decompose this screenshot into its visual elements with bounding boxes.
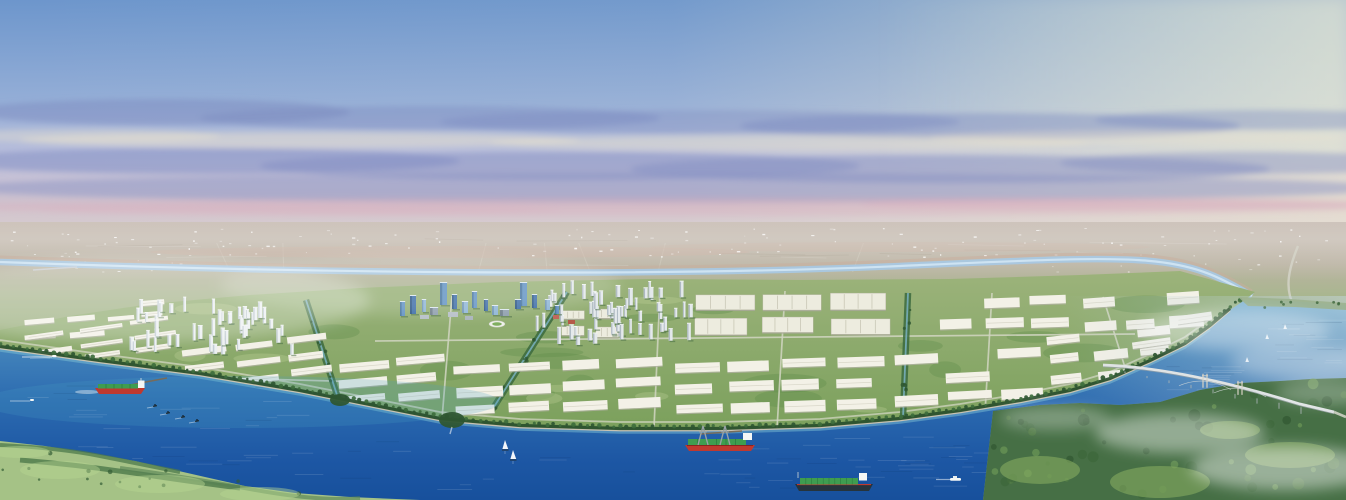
aerial-rendering-canvas bbox=[0, 0, 1346, 500]
river-inlet-headland bbox=[439, 412, 465, 428]
podium-building bbox=[553, 315, 559, 319]
aerial-city-rendering bbox=[0, 0, 1346, 500]
canal-inlet bbox=[330, 394, 350, 406]
podium-building bbox=[465, 316, 473, 320]
podium-building bbox=[420, 315, 429, 319]
podium-building bbox=[568, 320, 575, 324]
